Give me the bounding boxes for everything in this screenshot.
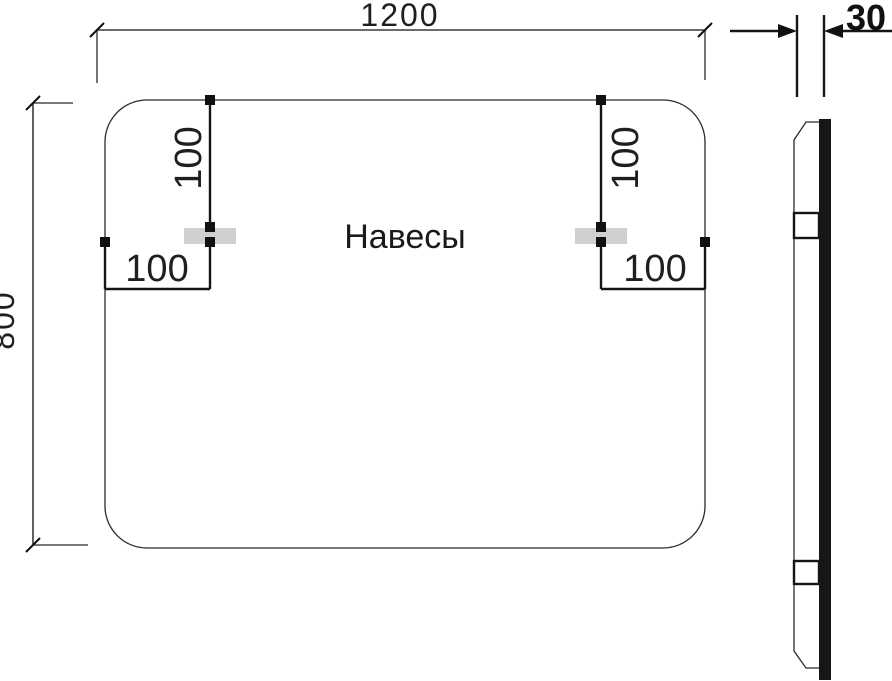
- left-hanger-group: 100 100: [100, 95, 236, 290]
- right-hanger-top-offset-value: 100: [605, 126, 647, 189]
- right-hanger-side-offset-value: 100: [623, 248, 686, 290]
- marker-square: [596, 222, 606, 232]
- marker-square: [205, 95, 215, 105]
- width-dimension: 1200: [90, 0, 712, 83]
- marker-square: [205, 237, 215, 247]
- hangers-label: Навесы: [344, 218, 466, 256]
- side-view-bracket-top: [794, 213, 819, 238]
- mirror-dimension-drawing: Навесы 1200 800 100: [0, 0, 892, 681]
- width-dim-value: 1200: [360, 0, 439, 33]
- side-view-glass-edge: [819, 119, 831, 680]
- right-hanger-group: 100 100: [575, 95, 710, 290]
- thickness-dim-arrow-right: [824, 24, 843, 38]
- side-view: [794, 119, 831, 680]
- marker-square: [205, 222, 215, 232]
- thickness-dimension: 30: [730, 0, 892, 97]
- height-dimension: 800: [0, 96, 88, 552]
- thickness-dim-arrow-left: [778, 24, 797, 38]
- height-dim-value: 800: [0, 290, 21, 349]
- thickness-dim-value: 30: [846, 0, 886, 38]
- side-view-bracket-bottom: [794, 561, 819, 584]
- marker-square: [596, 237, 606, 247]
- left-hanger-top-offset-value: 100: [168, 126, 210, 189]
- side-view-housing-outline: [794, 122, 819, 668]
- marker-square: [100, 237, 110, 247]
- left-hanger-side-offset-value: 100: [125, 248, 188, 290]
- marker-square: [700, 237, 710, 247]
- marker-square: [596, 95, 606, 105]
- technical-drawing-page: Навесы 1200 800 100: [0, 0, 892, 681]
